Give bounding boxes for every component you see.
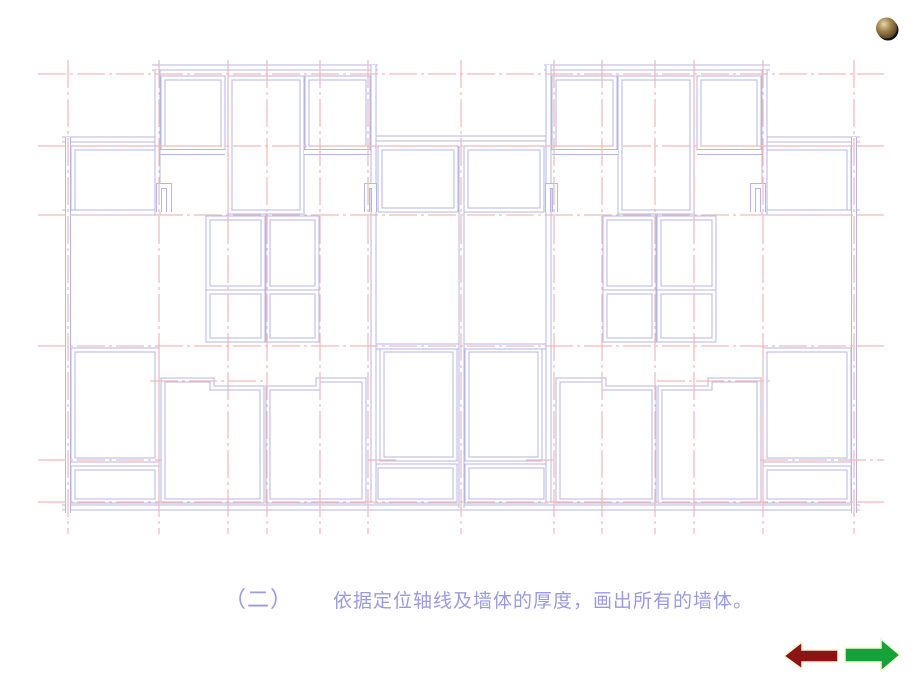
room-outline <box>765 468 849 501</box>
room-outline <box>466 148 542 210</box>
wall-stub <box>159 186 169 212</box>
room-outline <box>268 380 364 501</box>
room-outline <box>699 78 759 148</box>
room-outline <box>659 292 714 340</box>
room-outline <box>73 148 157 212</box>
room-outline <box>268 218 317 288</box>
room-outline <box>467 466 546 501</box>
room-outline <box>73 350 157 460</box>
room-outline <box>605 292 654 340</box>
room-outline <box>73 468 157 501</box>
room-outline <box>620 78 692 212</box>
room-outline <box>163 78 223 148</box>
room-outline <box>660 380 759 501</box>
room-outline <box>208 292 263 340</box>
room-outline <box>699 78 759 148</box>
slide: （二）依据定位轴线及墙体的厚度，画出所有的墙体。 <box>0 0 920 690</box>
room-outline <box>765 148 849 212</box>
room-outline <box>376 466 455 501</box>
room-outline <box>558 380 654 501</box>
room-outline <box>208 292 263 340</box>
room-outline <box>380 148 456 210</box>
room-outline <box>660 380 759 501</box>
room-outline <box>307 78 368 148</box>
room-outline <box>230 78 302 212</box>
room-outline <box>605 218 654 288</box>
next-slide-button[interactable] <box>845 639 900 671</box>
caption: （二）依据定位轴线及墙体的厚度，画出所有的墙体。 <box>224 582 753 614</box>
room-outline <box>268 218 317 288</box>
room-outline <box>208 218 263 288</box>
room-outline <box>620 78 692 212</box>
room-outline <box>554 78 615 148</box>
room-outline <box>376 466 455 501</box>
room-outline <box>268 380 364 501</box>
sphere-body <box>876 18 897 39</box>
room-outline <box>765 350 849 460</box>
slide-nav <box>776 632 908 676</box>
room-outline <box>765 468 849 501</box>
right-arrow-icon <box>845 639 900 671</box>
room-outline <box>163 78 223 148</box>
wall-stub <box>753 186 763 212</box>
room-outline <box>467 350 540 459</box>
prev-slide-button[interactable] <box>784 642 838 669</box>
room-outline <box>659 292 714 340</box>
caption-index: （二） <box>224 587 293 612</box>
room-outline <box>307 78 368 148</box>
room-outline <box>605 218 654 288</box>
sphere-ball-icon <box>870 10 906 46</box>
room-outline <box>230 78 302 212</box>
room-outline <box>605 292 654 340</box>
room-outline <box>467 350 540 459</box>
room-outline <box>163 380 262 501</box>
room-outline <box>73 350 157 460</box>
room-outline <box>208 218 263 288</box>
room-outline <box>554 78 615 148</box>
room-outline <box>73 468 157 501</box>
room-outline <box>466 148 542 210</box>
room-outline <box>163 380 262 501</box>
room-outline <box>382 350 455 459</box>
room-outline <box>765 148 849 212</box>
room-outline <box>268 292 317 340</box>
left-arrow-icon <box>784 642 838 669</box>
caption-text: 依据定位轴线及墙体的厚度，画出所有的墙体。 <box>333 591 753 612</box>
room-outline <box>380 148 456 210</box>
room-outline <box>659 218 714 288</box>
room-outline <box>73 148 157 212</box>
room-outline <box>765 350 849 460</box>
room-outline <box>467 466 546 501</box>
room-outline <box>382 350 455 459</box>
room-outline <box>268 292 317 340</box>
room-outline <box>558 380 654 501</box>
floor-plan-svg <box>0 0 920 560</box>
room-outline <box>659 218 714 288</box>
